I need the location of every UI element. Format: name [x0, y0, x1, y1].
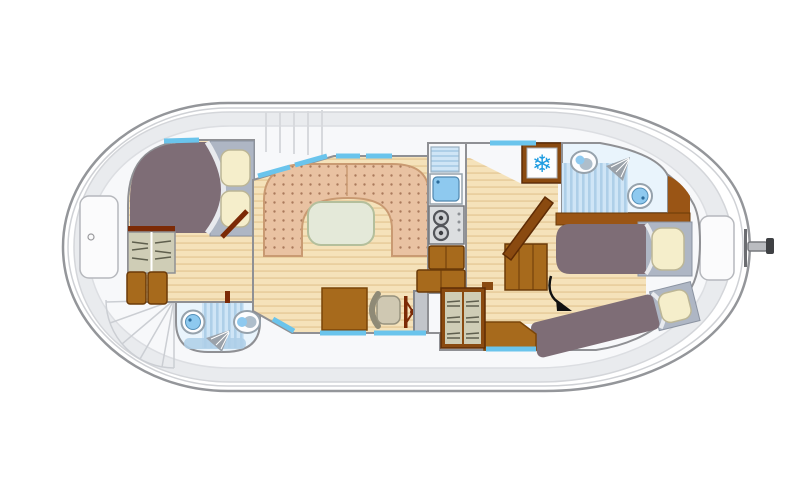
stern-washbasin-icon: [628, 184, 652, 208]
helm-wardrobe: [441, 288, 485, 348]
bow-hatch: [80, 196, 118, 278]
washbasin-icon: [182, 311, 205, 334]
galley-sink: [430, 174, 462, 204]
refrigerator: ❄: [522, 143, 562, 183]
boat-floorplan: ❄: [0, 0, 800, 500]
bathroom-door-post: [225, 291, 230, 303]
toilet-icon: [234, 311, 260, 333]
window-bow-cabin: [164, 140, 199, 141]
aft-block: ❄: [417, 143, 700, 361]
stove: [429, 206, 464, 244]
stern-toilet-icon: [571, 151, 597, 173]
stern-hatch: [700, 216, 734, 280]
saloon-table: [308, 202, 374, 245]
bow-cabin: [127, 140, 254, 304]
bow-wardrobe: [128, 226, 175, 273]
floorplan-canvas: ❄: [0, 0, 800, 500]
saloon-cabinet: [322, 288, 367, 330]
stern-bed-1: [556, 222, 692, 276]
bow-pillow-1: [221, 150, 250, 186]
tiller-handle: [766, 238, 774, 254]
saloon: [253, 156, 440, 333]
draining-board: [431, 147, 459, 172]
snowflake-icon: ❄: [532, 150, 552, 178]
